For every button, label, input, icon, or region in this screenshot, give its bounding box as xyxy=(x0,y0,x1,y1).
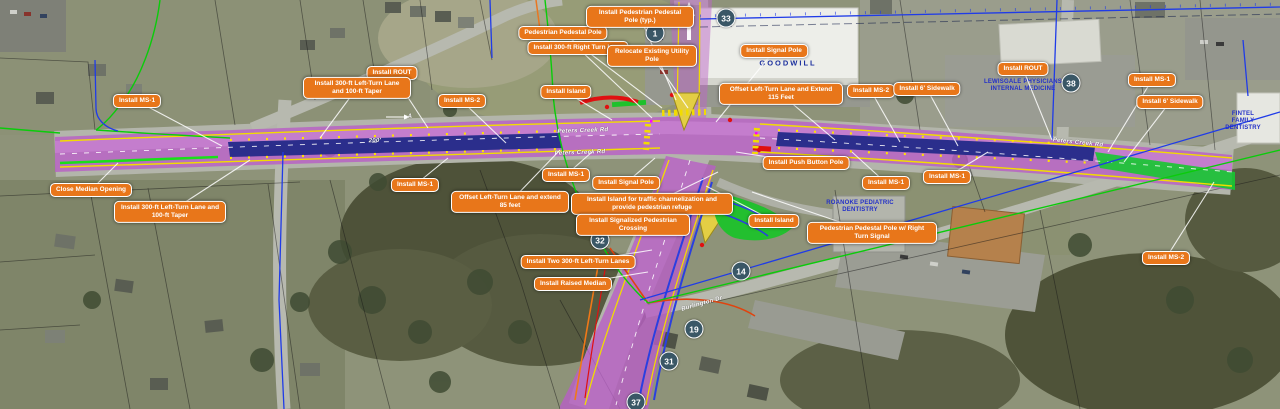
sheet-note-marker: 31 xyxy=(660,352,679,371)
aerial-plan-map: Install MS-1Install ROUTInstall 300-ft L… xyxy=(0,0,1280,409)
callout-label: Install 300-ft Left-Turn Lane and 100-ft… xyxy=(114,201,226,223)
callout-label: Install 6' Sidewalk xyxy=(893,82,960,96)
callout-label: Install Pedestrian Pedestal Pole (typ.) xyxy=(586,6,694,28)
marker-number: 33 xyxy=(721,13,730,23)
callout-text: Install Pedestrian Pedestal Pole (typ.) xyxy=(599,9,681,24)
marker-number: 37 xyxy=(631,397,640,407)
building-name-text: GOODWILL xyxy=(759,59,816,68)
marker-number: 32 xyxy=(595,235,604,245)
callout-label: Install Island for traffic channelizatio… xyxy=(571,193,733,215)
callout-text: Offset Left-Turn Lane and extend 85 feet xyxy=(459,194,561,209)
marker-number: 31 xyxy=(664,356,673,366)
callout-text: Install Island xyxy=(546,88,585,95)
callout-text: Install MS-1 xyxy=(119,97,155,104)
callout-text: Install Island xyxy=(754,217,793,224)
callout-label: Install MS-1 xyxy=(113,94,161,108)
callout-text: Install Signalized Pedestrian Crossing xyxy=(589,217,677,232)
callout-label: Install MS-1 xyxy=(391,178,439,192)
callout-text: Pedestrian Pedestal Pole w/ Right Turn S… xyxy=(820,225,924,240)
callout-label: Install MS-2 xyxy=(847,84,895,98)
callout-label: Install Push Button Pole xyxy=(763,156,850,170)
callout-text: Install 6' Sidewalk xyxy=(899,85,954,92)
building-name-text: LEWISGALE PHYSICIANS INTERNAL MEDICINE xyxy=(984,79,1062,92)
callout-text: Install 6' Sidewalk xyxy=(1142,98,1197,105)
building-name-text: FINTEL FAMILY DENTISTRY xyxy=(1225,111,1261,131)
building-name-label: LEWISGALE PHYSICIANS INTERNAL MEDICINE xyxy=(984,79,1062,93)
callout-text: Install Raised Median xyxy=(540,280,606,287)
callout-text: Install ROUT xyxy=(1003,65,1042,72)
marker-number: 19 xyxy=(689,324,698,334)
callout-text: Relocate Existing Utility Pole xyxy=(615,48,689,63)
callout-text: Install 300-ft Left-Turn Lane and 100-ft… xyxy=(121,204,219,219)
marker-number: 38 xyxy=(1066,78,1075,88)
callout-text: Install MS-2 xyxy=(444,97,480,104)
callout-text: Offset Left-Turn Lane and Extend 115 Fee… xyxy=(730,86,832,101)
marker-number: 14 xyxy=(736,266,745,276)
callout-text: Install ROUT xyxy=(372,69,411,76)
marker-number: 1 xyxy=(653,28,658,38)
callout-label: Pedestrian Pedestal Pole w/ Right Turn S… xyxy=(807,222,937,244)
callout-text: Install MS-1 xyxy=(1134,76,1170,83)
callout-text: Close Median Opening xyxy=(56,186,126,193)
callout-label: Pedestrian Pedestal Pole xyxy=(518,26,607,40)
sheet-note-marker: 19 xyxy=(685,320,704,339)
road-name-label: 200' xyxy=(369,138,382,144)
callout-text: Install Push Button Pole xyxy=(769,159,844,166)
callout-text: Pedestrian Pedestal Pole xyxy=(524,29,601,36)
callout-label: Install MS-2 xyxy=(1142,251,1190,265)
callout-label: Install ROUT xyxy=(997,62,1048,76)
building-name-text: ROANOKE PEDIATRIC DENTISTRY xyxy=(826,200,894,213)
callout-label: Install MS-2 xyxy=(438,94,486,108)
callout-label: Install 6' Sidewalk xyxy=(1136,95,1203,109)
callout-label: Install Signal Pole xyxy=(740,44,808,58)
callout-label: Relocate Existing Utility Pole xyxy=(607,45,697,67)
callout-label: Install Island xyxy=(748,214,799,228)
callout-label: Install Raised Median xyxy=(534,277,612,291)
road-name-label: A xyxy=(408,114,413,120)
callout-label: Offset Left-Turn Lane and Extend 115 Fee… xyxy=(719,83,843,105)
sheet-note-marker: 33 xyxy=(717,9,736,28)
callout-text: Install Signal Pole xyxy=(746,47,802,54)
callout-label: Install MS-1 xyxy=(862,176,910,190)
callout-text: Install MS-1 xyxy=(868,179,904,186)
callout-label: Install Signalized Pedestrian Crossing xyxy=(576,214,690,236)
callout-text: Install MS-1 xyxy=(929,173,965,180)
callout-text: Install MS-1 xyxy=(548,171,584,178)
callout-text: Install 300-ft Left-Turn Lane and 100-ft… xyxy=(315,80,400,95)
sheet-note-marker: 14 xyxy=(732,262,751,281)
sheet-note-marker: 37 xyxy=(627,393,646,409)
callout-label: Close Median Opening xyxy=(50,183,132,197)
callout-label: Install Two 300-ft Left-Turn Lanes xyxy=(521,255,636,269)
callout-text: Install MS-1 xyxy=(397,181,433,188)
callout-label: Install MS-1 xyxy=(923,170,971,184)
callout-text: Install MS-2 xyxy=(853,87,889,94)
callout-text: Install MS-2 xyxy=(1148,254,1184,261)
building-name-label: GOODWILL xyxy=(759,59,816,68)
callout-text: Install Signal Pole xyxy=(598,179,654,186)
callout-label: Install Island xyxy=(540,85,591,99)
callout-label: Install Signal Pole xyxy=(592,176,660,190)
building-name-label: ROANOKE PEDIATRIC DENTISTRY xyxy=(826,200,894,214)
building-name-label: FINTEL FAMILY DENTISTRY xyxy=(1225,111,1262,133)
sheet-note-marker: 38 xyxy=(1062,74,1081,93)
callout-label: Install 300-ft Left-Turn Lane and 100-ft… xyxy=(303,77,411,99)
callout-label: Offset Left-Turn Lane and extend 85 feet xyxy=(451,191,569,213)
road-name-text: A xyxy=(408,114,413,120)
callout-label: Install MS-1 xyxy=(542,168,590,182)
callout-text: Install Island for traffic channelizatio… xyxy=(587,196,717,211)
callout-label: Install MS-1 xyxy=(1128,73,1176,87)
road-name-text: 200' xyxy=(369,138,382,144)
callout-text: Install Two 300-ft Left-Turn Lanes xyxy=(527,258,630,265)
